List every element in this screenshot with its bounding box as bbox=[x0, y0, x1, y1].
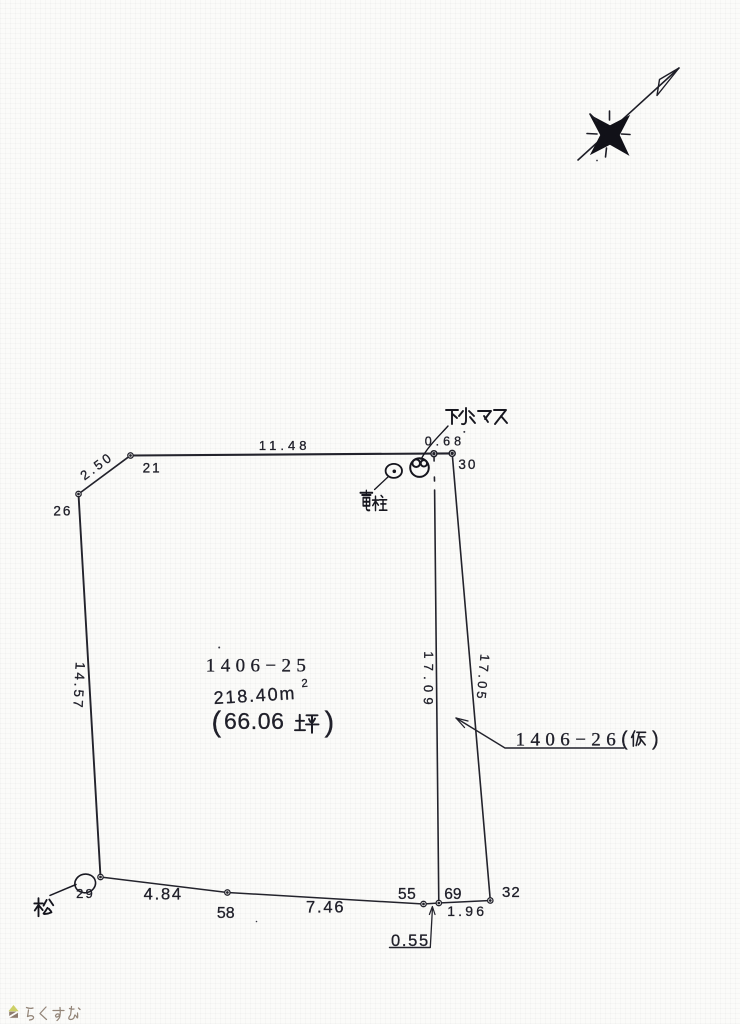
svg-text:2.50: 2.50 bbox=[77, 449, 116, 483]
svg-text:17.09: 17.09 bbox=[421, 651, 437, 710]
svg-text:32: 32 bbox=[502, 884, 521, 901]
svg-text:30: 30 bbox=[458, 457, 477, 472]
svg-text:): ) bbox=[652, 729, 659, 751]
svg-text:218.40m: 218.40m bbox=[213, 683, 297, 708]
svg-text:): ) bbox=[325, 707, 335, 739]
svg-text:0.68: 0.68 bbox=[425, 435, 465, 449]
svg-text:26: 26 bbox=[53, 503, 72, 518]
svg-text:(: ( bbox=[212, 707, 222, 739]
svg-text:21: 21 bbox=[143, 461, 162, 476]
svg-text:(: ( bbox=[621, 729, 628, 751]
svg-text:58: 58 bbox=[217, 905, 235, 922]
svg-text:66.06: 66.06 bbox=[224, 708, 285, 734]
svg-text:1.96: 1.96 bbox=[447, 903, 487, 919]
svg-text:11.48: 11.48 bbox=[259, 438, 311, 453]
svg-text:55: 55 bbox=[398, 886, 416, 903]
svg-text:69: 69 bbox=[444, 886, 461, 903]
svg-text:17.05: 17.05 bbox=[473, 654, 492, 703]
svg-text:4.84: 4.84 bbox=[144, 886, 183, 904]
svg-text:2: 2 bbox=[301, 678, 308, 690]
svg-text:1406−25: 1406−25 bbox=[206, 656, 312, 677]
svg-text:29: 29 bbox=[76, 886, 95, 901]
svg-text:14.57: 14.57 bbox=[70, 662, 88, 711]
svg-text:7.46: 7.46 bbox=[306, 898, 345, 916]
